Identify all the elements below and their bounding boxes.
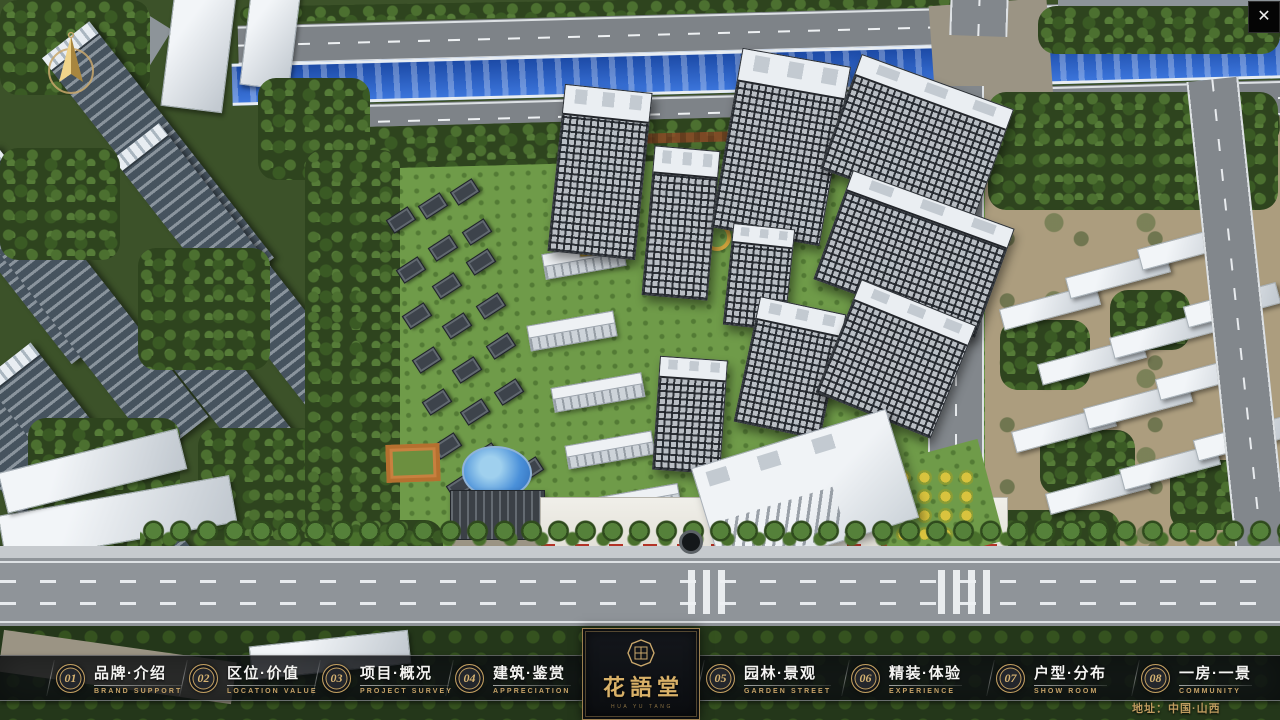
corner-trees [1038, 6, 1280, 54]
nav-item-sublabel: COMMUNITY [1179, 688, 1252, 695]
label-divider [493, 685, 571, 686]
nav-item-garden[interactable]: 05 园林·景观 GARDEN STREET [700, 656, 845, 700]
number-badge: 01 [56, 664, 85, 693]
nav-item-text: 建筑·鉴赏 APPRECIATION [493, 662, 571, 695]
nav-item-sublabel: BRAND SUPPORT [94, 688, 182, 695]
nav-item-sublabel: EXPERIENCE [889, 688, 962, 695]
nav-item-text: 一房·一景 COMMUNITY [1179, 662, 1252, 695]
sidewalk [0, 546, 1280, 558]
nav-item-label: 区位·价值 [227, 662, 316, 683]
nav-item-label: 建筑·鉴赏 [493, 662, 571, 683]
nav-item-label: 园林·景观 [744, 662, 831, 683]
nav-item-text: 品牌·介绍 BRAND SUPPORT [94, 662, 182, 695]
label-divider [1034, 685, 1107, 686]
label-divider [94, 685, 182, 686]
left-trees [0, 148, 120, 260]
crosswalk [938, 558, 996, 626]
entry-circle [679, 530, 703, 554]
nav-item-text: 区位·价值 LOCATION VALUE [227, 662, 316, 695]
label-divider [360, 685, 449, 686]
nav-item-sublabel: LOCATION VALUE [227, 688, 316, 695]
nav-item-floorplan[interactable]: 07 户型·分布 SHOW ROOM [990, 656, 1135, 700]
nav-item-text: 项目·概况 PROJECT SURVEY [360, 662, 449, 695]
close-button[interactable]: ✕ [1248, 1, 1280, 33]
residential-tower [652, 356, 728, 474]
label-divider [889, 685, 962, 686]
nav-item-label: 户型·分布 [1034, 662, 1107, 683]
nav-item-label: 一房·一景 [1179, 662, 1252, 683]
crosswalk [688, 558, 730, 626]
number-badge: 03 [322, 664, 351, 693]
navbar-spacer [0, 656, 50, 700]
nav-item-sublabel: GARDEN STREET [744, 688, 831, 695]
nav-item-interior[interactable]: 06 精装·体验 EXPERIENCE [845, 656, 990, 700]
nav-item-label: 项目·概况 [360, 662, 449, 683]
residential-tower [642, 145, 721, 300]
nav-item-brand[interactable]: 01 品牌·介绍 BRAND SUPPORT [50, 656, 183, 700]
left-trees [138, 248, 270, 370]
bridge-road [949, 0, 1008, 37]
number-badge: 06 [851, 664, 880, 693]
nav-item-label: 品牌·介绍 [94, 662, 182, 683]
compass-icon [42, 30, 100, 105]
nav-item-sublabel: PROJECT SURVEY [360, 688, 449, 695]
nav-item-project[interactable]: 03 项目·概况 PROJECT SURVEY [316, 656, 449, 700]
nav-item-sublabel: APPRECIATION [493, 688, 571, 695]
orange-building [385, 443, 440, 483]
main-road [0, 558, 1280, 626]
logo-title: 花語堂 [603, 670, 684, 702]
presentation-screen: ✕ 01 品牌·介绍 BRAND SUPPORT 02 区位·价值 LOCATI… [0, 0, 1280, 720]
address-label: 地址：中国·山西 [1132, 700, 1221, 716]
number-badge: 07 [996, 664, 1025, 693]
residential-tower [547, 84, 652, 260]
logo-panel[interactable]: 花語堂 HUA YU TANG [582, 628, 700, 720]
nav-item-view[interactable]: 08 一房·一景 COMMUNITY [1135, 656, 1280, 700]
nav-item-text: 户型·分布 SHOW ROOM [1034, 662, 1107, 695]
label-divider [744, 685, 831, 686]
number-badge: 05 [706, 664, 735, 693]
logo-tagline: HUA YU TANG [611, 704, 673, 710]
number-badge: 02 [189, 664, 218, 693]
nav-item-text: 园林·景观 GARDEN STREET [744, 662, 831, 695]
label-divider [1179, 685, 1252, 686]
close-icon: ✕ [1257, 9, 1270, 25]
nav-item-architecture[interactable]: 04 建筑·鉴赏 APPRECIATION [449, 656, 582, 700]
number-badge: 04 [455, 664, 484, 693]
seal-icon [626, 638, 656, 668]
label-divider [227, 685, 316, 686]
nav-item-sublabel: SHOW ROOM [1034, 688, 1107, 695]
corner-tower [160, 0, 237, 113]
nav-item-text: 精装·体验 EXPERIENCE [889, 662, 962, 695]
number-badge: 08 [1141, 664, 1170, 693]
nav-item-location[interactable]: 02 区位·价值 LOCATION VALUE [183, 656, 316, 700]
nav-item-label: 精装·体验 [889, 662, 962, 683]
